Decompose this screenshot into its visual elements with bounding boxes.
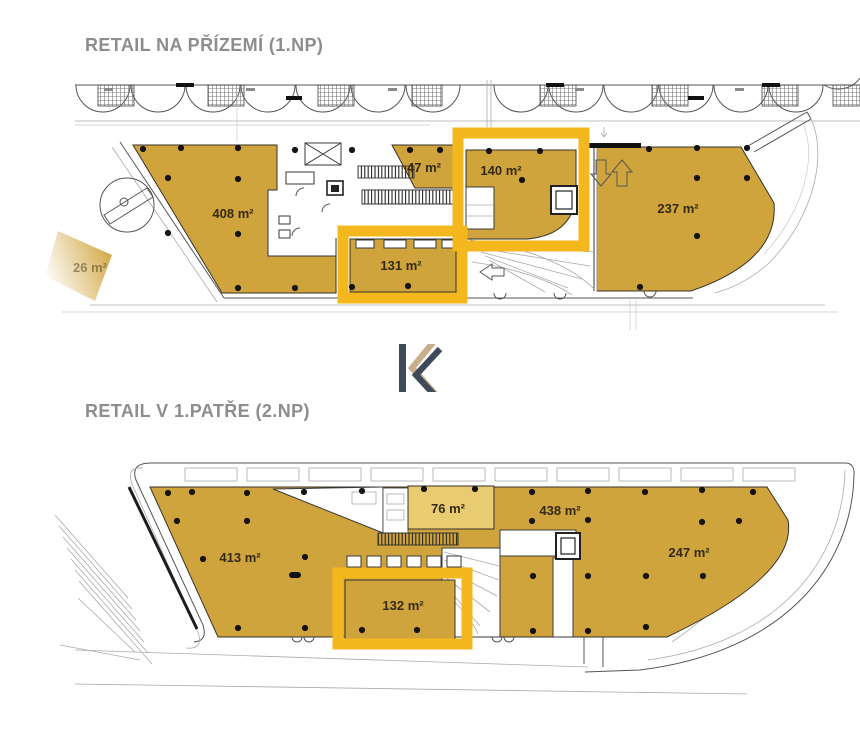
area-47-label: 47 m² [407,160,442,175]
area-438-label: 438 m² [539,503,581,518]
area-132-label: 132 m² [382,598,424,613]
planting-beds [98,85,860,106]
small-arrow-icon [601,127,607,137]
area-408-label: 408 m² [212,206,254,221]
area-413-label: 413 m² [219,550,261,565]
site-detail-circle [100,178,154,232]
top-room-row [185,468,795,481]
area-237 [597,147,774,291]
area-140-label: 140 m² [480,163,522,178]
brochure-page: RETAIL NA PŘÍZEMÍ (1.NP) [0,0,860,742]
area-26: 26 m² [45,231,112,301]
area-247-label: 247 m² [668,545,710,560]
logo-bar [399,344,406,392]
area-26-label: 26 m² [73,260,108,275]
area-131-label: 131 m² [380,258,422,273]
parking-stops [176,83,780,100]
logo-k-monogram [399,340,440,401]
area-76-label: 76 m² [431,501,466,516]
plan1-title: RETAIL NA PŘÍZEMÍ (1.NP) [85,34,323,55]
ramp-hatch [55,515,152,664]
area-237-label: 237 m² [657,201,699,216]
plan2-title: RETAIL V 1.PATŘE (2.NP) [85,400,310,421]
floor-plan-2: 413 m² 76 m² 438 m² 247 m² 132 m² [55,463,854,694]
floor-plan-1: 26 m² [45,78,860,330]
